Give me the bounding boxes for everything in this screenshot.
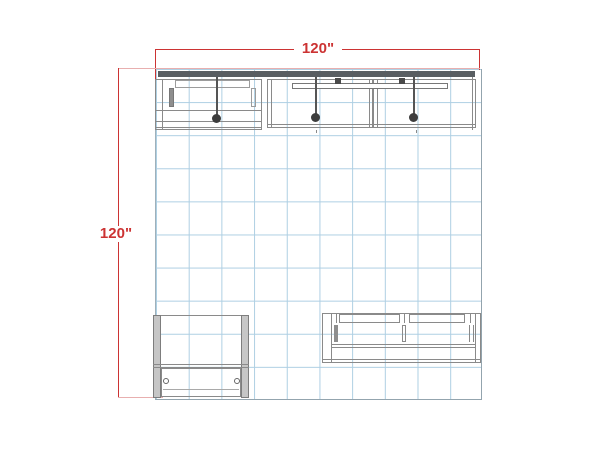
light-rail-bracket-2 xyxy=(399,78,405,84)
light-stem-2 xyxy=(315,77,317,114)
cabinet-left-inner-edge xyxy=(162,79,163,130)
width-extension-line-right xyxy=(479,49,480,70)
floor-plan-drawing: 120" 120" xyxy=(0,0,600,450)
cabinet-right-tick xyxy=(416,130,417,133)
left-counter-side-panel-right xyxy=(241,315,249,398)
cabinet-middle-inner-left-edge xyxy=(271,79,272,128)
overhead-light-1 xyxy=(212,114,221,123)
left-counter-top-edge xyxy=(153,315,249,316)
light-rail-bracket-1 xyxy=(335,78,341,84)
overhead-light-3 xyxy=(409,113,418,122)
light-stem-1 xyxy=(216,77,218,115)
left-counter-divider-line-1 xyxy=(153,364,249,365)
cabinet-left-top-panel xyxy=(175,80,250,88)
right-counter-top-panel-1 xyxy=(339,314,400,323)
top-boundary-line xyxy=(118,68,480,69)
cabinet-middle-tick xyxy=(316,130,317,133)
left-counter-door-line xyxy=(163,389,239,390)
right-counter-top-panel-2 xyxy=(409,314,465,323)
left-counter-knob-left xyxy=(163,378,169,384)
cabinet-left-shelf-line-2 xyxy=(156,121,261,122)
right-counter-inner-left-edge xyxy=(331,313,332,363)
cabinet-right-inner-right-edge xyxy=(472,77,473,130)
height-dimension-label: 120" xyxy=(94,226,138,242)
right-counter-inner-right-edge xyxy=(475,313,476,363)
overhead-light-2 xyxy=(311,113,320,122)
right-counter-leg-2 xyxy=(402,325,406,342)
cabinet-right-bottom-inner-line xyxy=(374,124,476,125)
cabinet-left-support-right xyxy=(251,88,256,107)
cabinet-left-support-left xyxy=(169,88,174,107)
left-counter-door-section xyxy=(161,368,241,397)
left-counter-side-panel-left xyxy=(153,315,161,398)
cabinet-left-shelf-line-1 xyxy=(156,110,261,111)
right-counter-notch-1 xyxy=(336,314,337,323)
cabinet-left-bottom-inner-line xyxy=(156,127,261,128)
right-counter-leg-1 xyxy=(334,325,338,342)
right-counter-shelf-line-2 xyxy=(331,347,475,348)
right-counter-bottom-inner-line xyxy=(322,359,481,360)
right-counter-shelf-line-1 xyxy=(331,344,475,345)
left-counter-knob-right xyxy=(234,378,240,384)
right-counter-notch-3 xyxy=(470,314,471,323)
right-counter-leg-3 xyxy=(469,325,474,342)
right-counter-notch-2 xyxy=(404,314,405,323)
light-stem-3 xyxy=(413,77,415,114)
width-dimension-label: 120" xyxy=(294,41,342,57)
cabinet-middle-bottom-inner-line xyxy=(268,124,372,125)
